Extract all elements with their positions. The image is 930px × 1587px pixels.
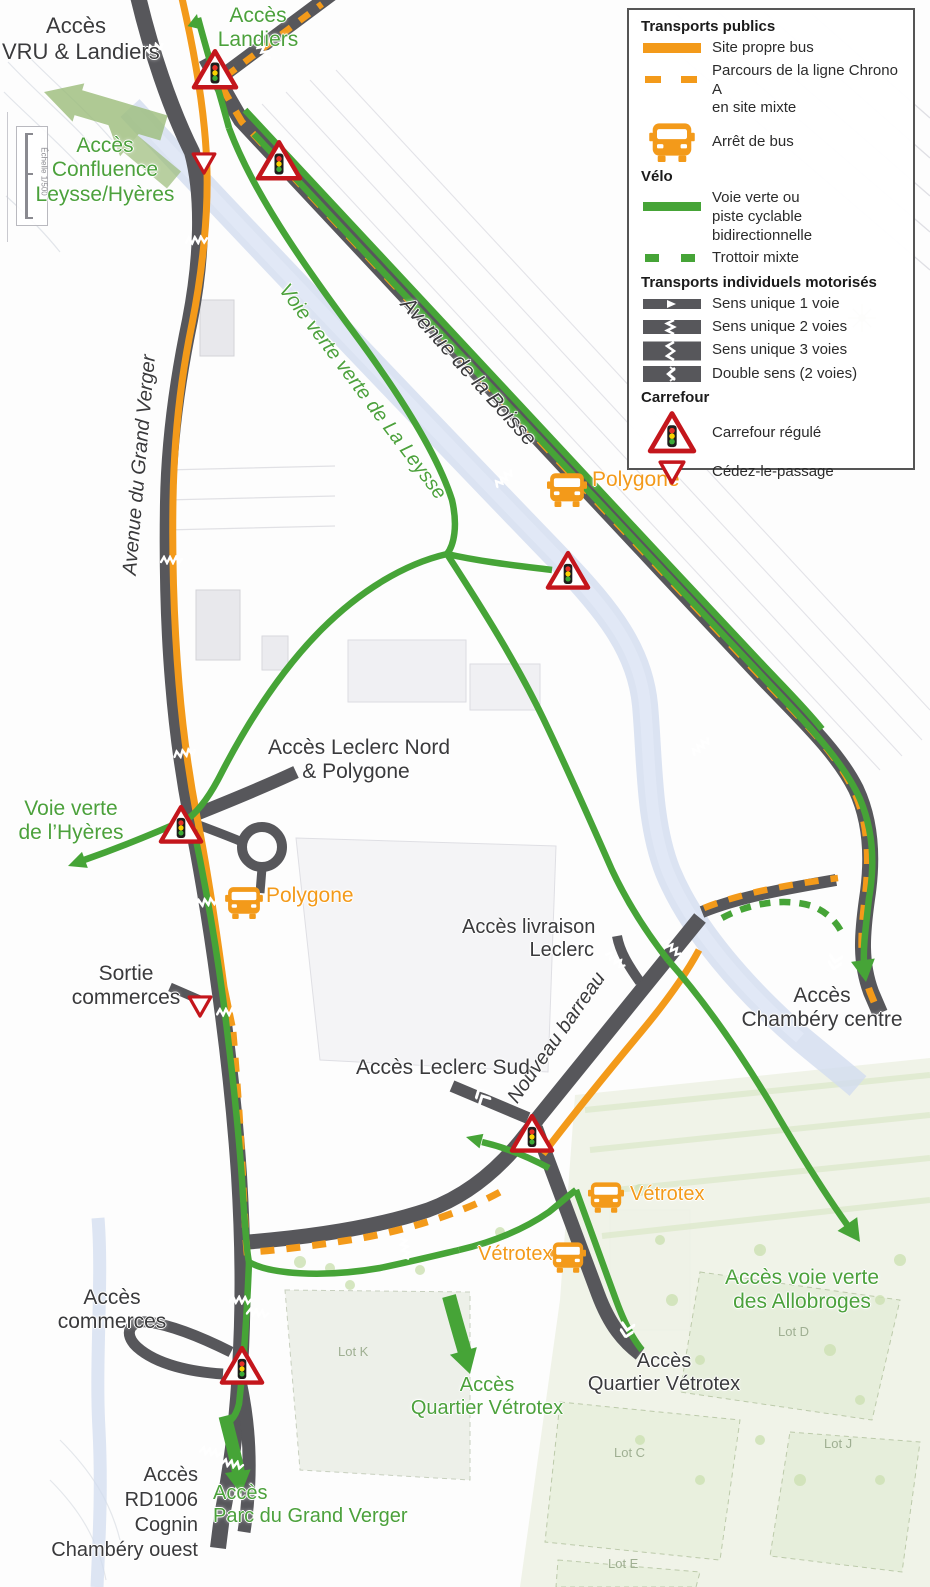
label-voie-verte-hyeres: Voie verte de l’Hyères	[8, 797, 134, 846]
label-acces-parc-grand-verger: Accès Parc du Grand Verger	[213, 1482, 408, 1528]
road-roundabout	[242, 827, 282, 867]
road-livraison-spur	[617, 936, 640, 982]
sens-unique-1-swatch	[641, 297, 703, 311]
label-lot-e: Lot E	[608, 1556, 638, 1571]
legend-section-carrefour: Carrefour	[641, 389, 903, 406]
road-boisse-ramp	[702, 880, 836, 912]
label-acces-quartier-vetrotex-sud: Accès Quartier Vétrotex	[398, 1374, 576, 1420]
legend-item-carrefour-regule: Carrefour régulé	[641, 410, 903, 456]
bus-icon	[225, 887, 263, 919]
arrow-acces-leclerc-sud	[464, 1130, 483, 1149]
legend-item-sens-unique-1: Sens unique 1 voie	[641, 295, 903, 314]
legend-item-arret-de-bus: Arrêt de bus	[641, 122, 903, 162]
legend-item-trottoir-mixte: Trottoir mixte	[641, 249, 903, 268]
legend-item-double-sens: Double sens (2 voies)	[641, 365, 903, 384]
bus-icon	[641, 122, 703, 162]
label-acces-rd1006: Accès RD1006 Cognin Chambéry ouest	[36, 1463, 198, 1563]
legend-item-sens-unique-3: Sens unique 3 voies	[641, 341, 903, 361]
label-bus-stop-vetrotex-sud: Vétrotex	[478, 1243, 552, 1266]
label-bus-stop-vetrotex-nord: Vétrotex	[630, 1183, 704, 1206]
label-bus-stop-polygone-sud: Polygone	[266, 884, 354, 908]
traffic-signal-triangle-icon	[641, 410, 703, 456]
yield-triangle-icon	[641, 460, 703, 485]
legend: Transports publics Site propre bus Parco…	[627, 8, 915, 470]
label-lot-k: Lot K	[338, 1344, 368, 1359]
label-acces-quartier-vetrotex-est: Accès Quartier Vétrotex	[572, 1350, 756, 1396]
sens-unique-3-swatch	[641, 341, 703, 361]
label-lot-d: Lot D	[778, 1324, 809, 1339]
legend-item-chrono-mixte: Parcours de la ligne Chrono A en site mi…	[641, 62, 903, 118]
chrono-mixte-swatch	[641, 62, 703, 84]
legend-section-velo: Vélo	[641, 168, 903, 185]
bike-trottoir-mixte	[722, 902, 843, 935]
voie-verte-swatch	[641, 189, 703, 212]
legend-item-site-propre-bus: Site propre bus	[641, 39, 903, 58]
legend-section-transports-publics: Transports publics	[641, 18, 903, 35]
legend-item-voie-verte: Voie verte ou piste cyclable bidirection…	[641, 189, 903, 245]
label-acces-landiers: Accès Landiers	[208, 4, 308, 53]
label-acces-livraison-leclerc: Accès livraison Leclerc	[462, 916, 594, 962]
label-lot-c: Lot C	[614, 1445, 645, 1460]
bus-icon	[547, 473, 587, 507]
trottoir-mixte-swatch	[641, 254, 703, 263]
arrow-voie-verte-hyeres	[65, 852, 88, 874]
margin-reference-mark	[7, 112, 8, 242]
bike-node-east-spur	[447, 554, 552, 570]
label-acces-leclerc-sud: Accès Leclerc Sud	[356, 1056, 530, 1080]
legend-item-cedez-le-passage: Cédez-le-passage	[641, 460, 903, 485]
site-propre-swatch	[641, 42, 703, 54]
sens-unique-2-swatch	[641, 319, 703, 335]
label-acces-leclerc-nord: Accès Leclerc Nord & Polygone	[268, 736, 444, 785]
label-acces-confluence: Accès Confluence Leysse/Hyères	[20, 134, 190, 207]
legend-section-transports-motorises: Transports individuels motorisés	[641, 274, 903, 291]
label-lot-j: Lot J	[824, 1436, 852, 1451]
double-sens-swatch	[641, 365, 703, 383]
road-roundabout-stub	[260, 868, 262, 893]
label-acces-vru-landiers: Accès VRU & Landiers	[2, 13, 150, 64]
circulation-map: Échelle 1/500 Accès VRU & Landiers Accès…	[0, 0, 930, 1587]
label-acces-commerces: Accès commerces	[36, 1286, 188, 1335]
label-sortie-commerces: Sortie commerces	[58, 962, 194, 1011]
label-acces-chambery-centre: Accès Chambéry centre	[728, 984, 916, 1033]
label-acces-voie-verte-allobroges: Accès voie verte des Allobroges	[706, 1266, 898, 1315]
legend-item-sens-unique-2: Sens unique 2 voies	[641, 318, 903, 337]
